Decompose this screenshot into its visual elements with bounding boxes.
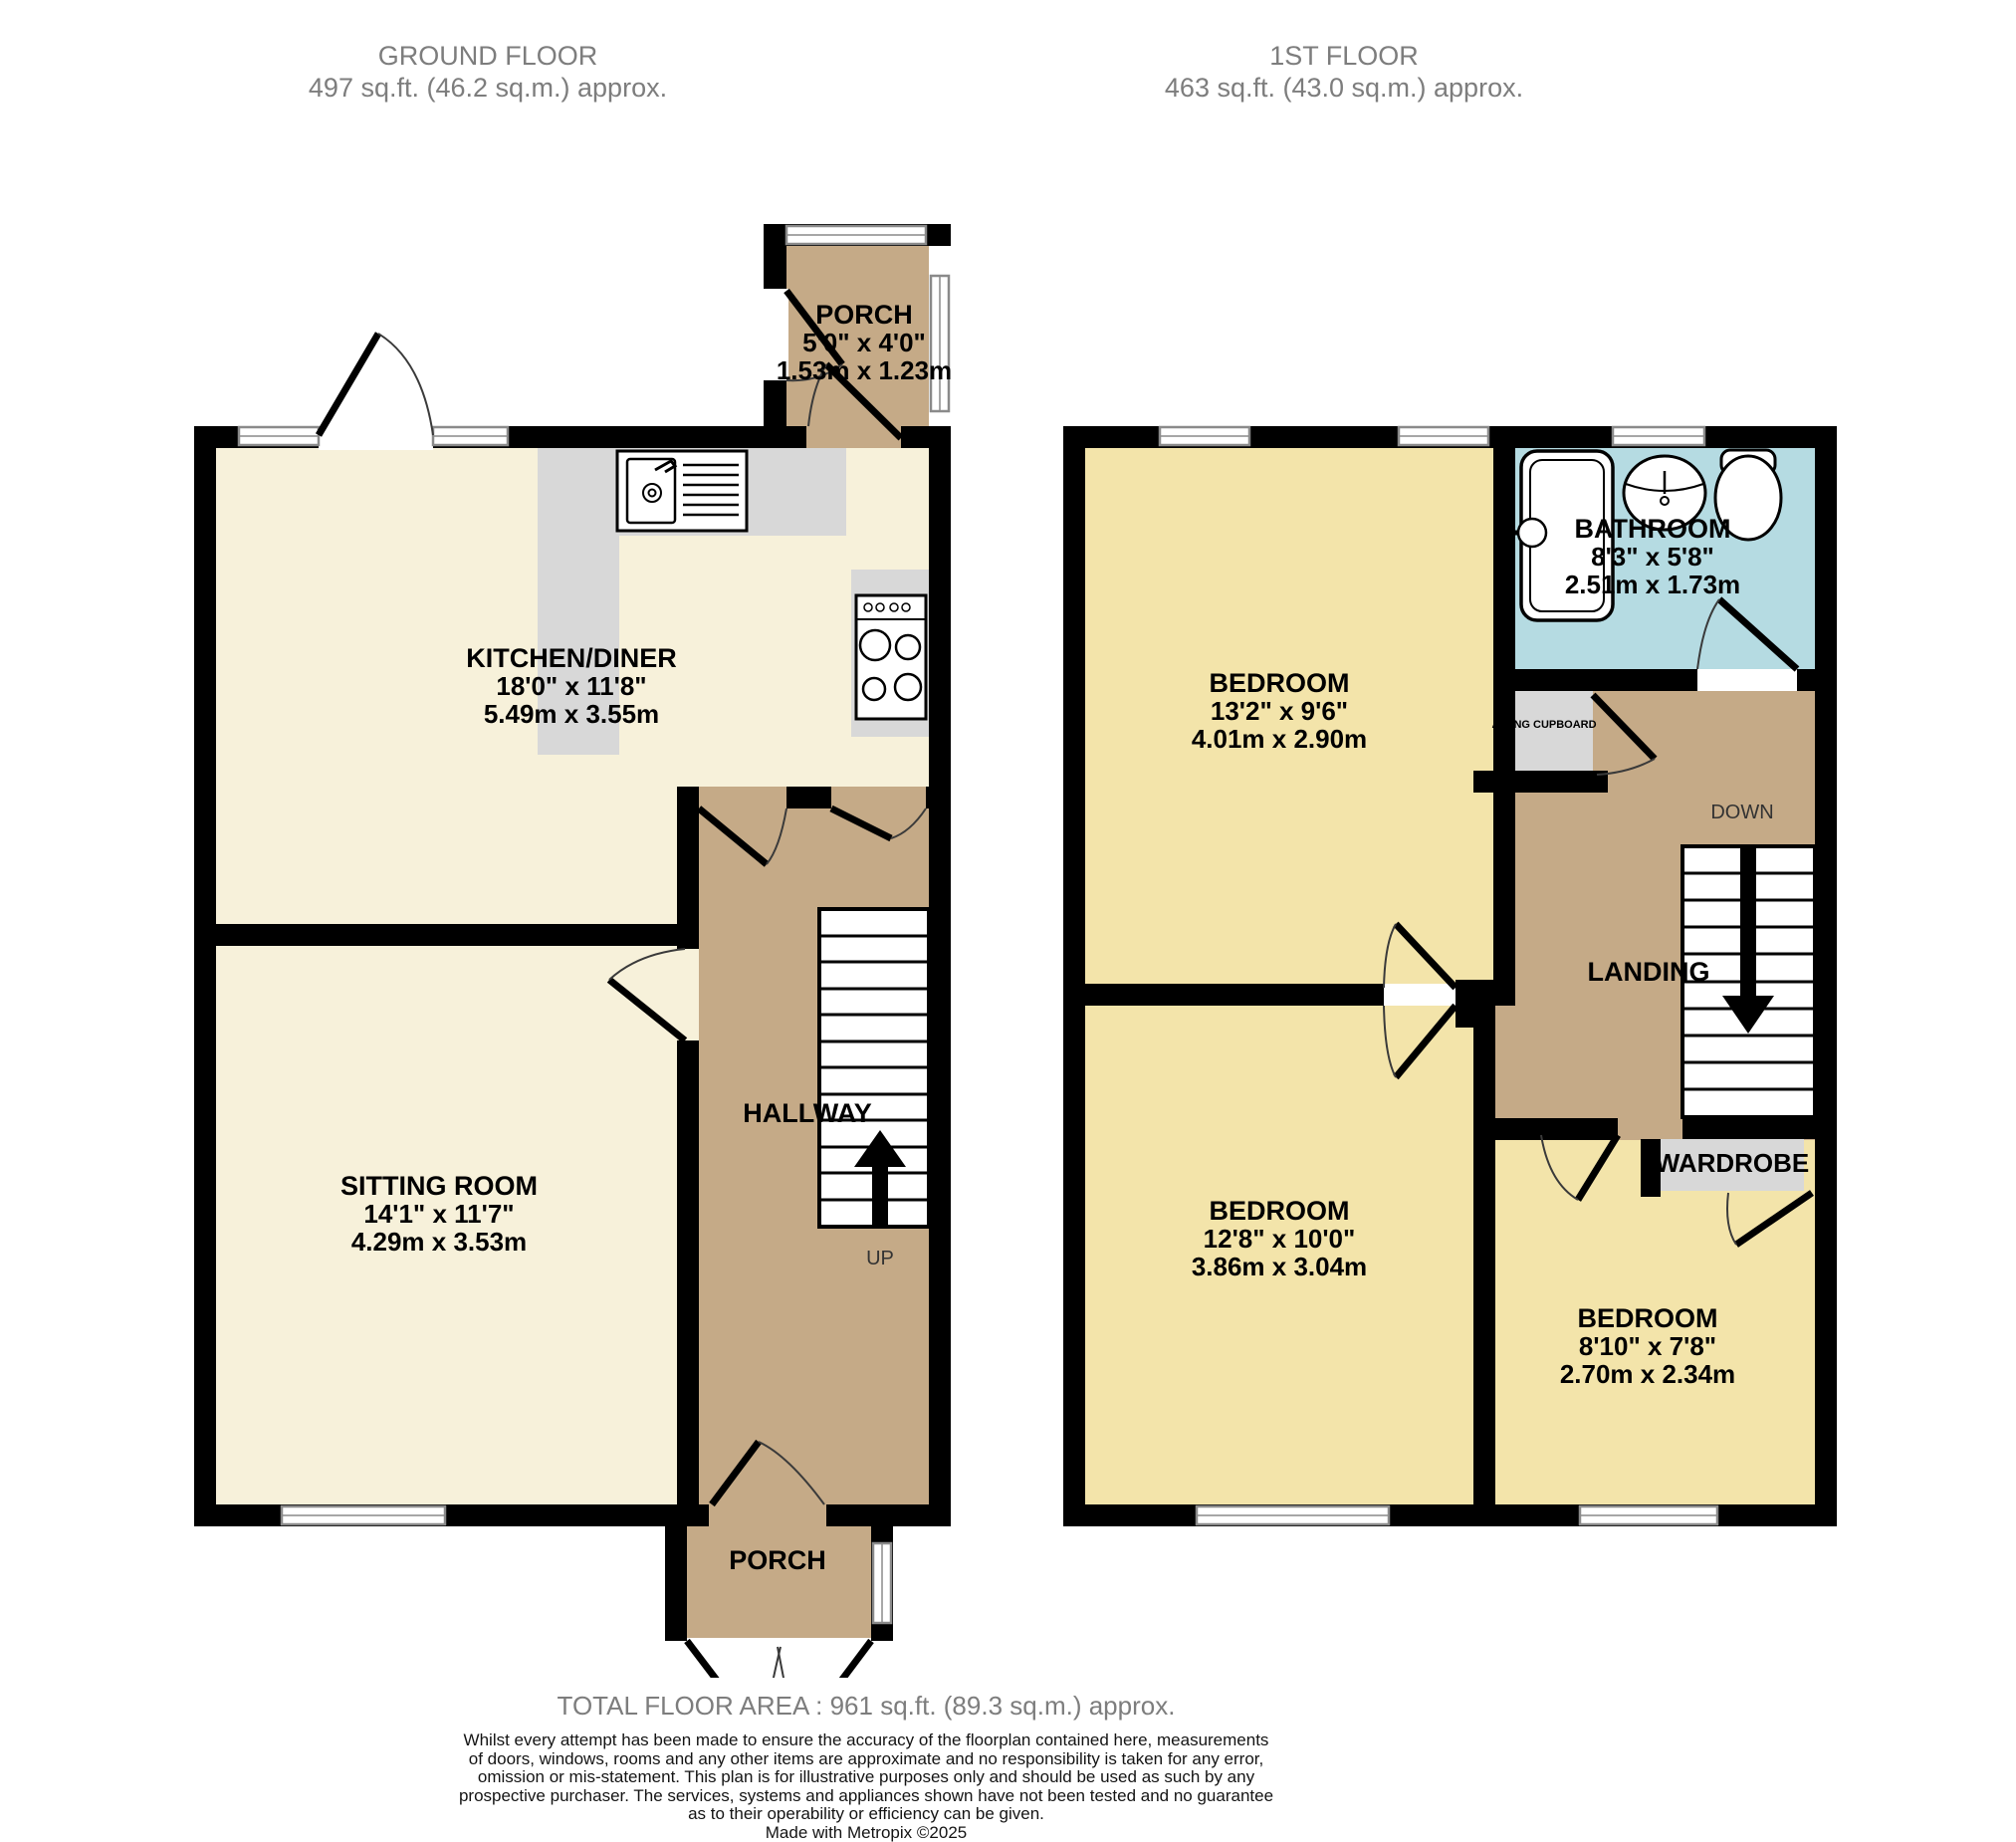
disclaimer-line: of doors, windows, rooms and any other i… bbox=[309, 1750, 1424, 1769]
first-floor-plan: BATHROOM 8'3" x 5'8" 2.51m x 1.73m BEDRO… bbox=[1063, 426, 1837, 1526]
window bbox=[873, 1543, 891, 1623]
disclaimer-line: Whilst every attempt has been made to en… bbox=[309, 1731, 1424, 1750]
window bbox=[1399, 427, 1488, 445]
sitting-label: SITTING ROOM bbox=[340, 1171, 538, 1201]
bathroom-imperial: 8'3" x 5'8" bbox=[1591, 542, 1714, 572]
window bbox=[1580, 1506, 1717, 1524]
airing-cupboard-label: AIRING CUPBOARD bbox=[1491, 719, 1596, 731]
bathroom-metric: 2.51m x 1.73m bbox=[1565, 570, 1740, 599]
bedroom3-label: BEDROOM bbox=[1578, 1303, 1718, 1333]
door-swing bbox=[687, 1641, 781, 1678]
stairs-down-label: DOWN bbox=[1710, 802, 1773, 823]
wardrobe-label: WARDROBE bbox=[1656, 1148, 1810, 1178]
bathroom-label: BATHROOM bbox=[1575, 514, 1731, 544]
footer: TOTAL FLOOR AREA : 961 sq.ft. (89.3 sq.m… bbox=[309, 1691, 1424, 1842]
bedroom1-metric: 4.01m x 2.90m bbox=[1192, 724, 1367, 754]
window bbox=[1160, 427, 1249, 445]
window bbox=[433, 427, 508, 445]
disclaimer-line: as to their operability or efficiency ca… bbox=[309, 1805, 1424, 1824]
room-porch-bottom-floor bbox=[687, 1526, 871, 1638]
porch-top-label: PORCH bbox=[815, 300, 913, 330]
window bbox=[1197, 1506, 1389, 1524]
door-swing bbox=[319, 334, 433, 435]
disclaimer-line: omission or mis-statement. This plan is … bbox=[309, 1768, 1424, 1787]
porch-top-imperial: 5'0" x 4'0" bbox=[802, 328, 926, 357]
stove-icon bbox=[856, 595, 926, 719]
total-floor-area: TOTAL FLOOR AREA : 961 sq.ft. (89.3 sq.m… bbox=[309, 1691, 1424, 1722]
door-swing bbox=[778, 1641, 871, 1678]
stairs-up bbox=[819, 909, 929, 1227]
disclaimer-line: prospective purchaser. The services, sys… bbox=[309, 1787, 1424, 1806]
bedroom3-imperial: 8'10" x 7'8" bbox=[1579, 1331, 1716, 1361]
bedroom1-imperial: 13'2" x 9'6" bbox=[1211, 696, 1348, 726]
bedroom2-metric: 3.86m x 3.04m bbox=[1192, 1252, 1367, 1281]
bedroom1-label: BEDROOM bbox=[1210, 668, 1350, 698]
kitchen-label: KITCHEN/DINER bbox=[466, 643, 677, 673]
landing-label: LANDING bbox=[1588, 957, 1710, 987]
window bbox=[931, 276, 949, 411]
bedroom2-label: BEDROOM bbox=[1210, 1196, 1350, 1226]
bedroom3-metric: 2.70m x 2.34m bbox=[1560, 1359, 1735, 1389]
kitchen-metric: 5.49m x 3.55m bbox=[484, 699, 659, 729]
floorplan-canvas: PORCH 5'0" x 4'0" 1.53m x 1.23m KITCHEN/… bbox=[0, 0, 2016, 1678]
hallway-label: HALLWAY bbox=[743, 1098, 872, 1128]
porch-top-metric: 1.53m x 1.23m bbox=[777, 355, 952, 385]
porch-bottom-label: PORCH bbox=[729, 1545, 826, 1575]
window bbox=[1613, 427, 1704, 445]
ground-floor-plan: PORCH 5'0" x 4'0" 1.53m x 1.23m KITCHEN/… bbox=[194, 224, 952, 1678]
window bbox=[282, 1506, 445, 1524]
sitting-imperial: 14'1" x 11'7" bbox=[363, 1199, 514, 1229]
kitchen-sink-icon bbox=[617, 451, 747, 531]
window bbox=[786, 226, 926, 244]
bedroom2-imperial: 12'8" x 10'0" bbox=[1204, 1224, 1356, 1254]
sitting-metric: 4.29m x 3.53m bbox=[351, 1227, 527, 1257]
stairs-up-label: UP bbox=[866, 1248, 894, 1269]
kitchen-imperial: 18'0" x 11'8" bbox=[496, 671, 646, 701]
window bbox=[239, 427, 319, 445]
